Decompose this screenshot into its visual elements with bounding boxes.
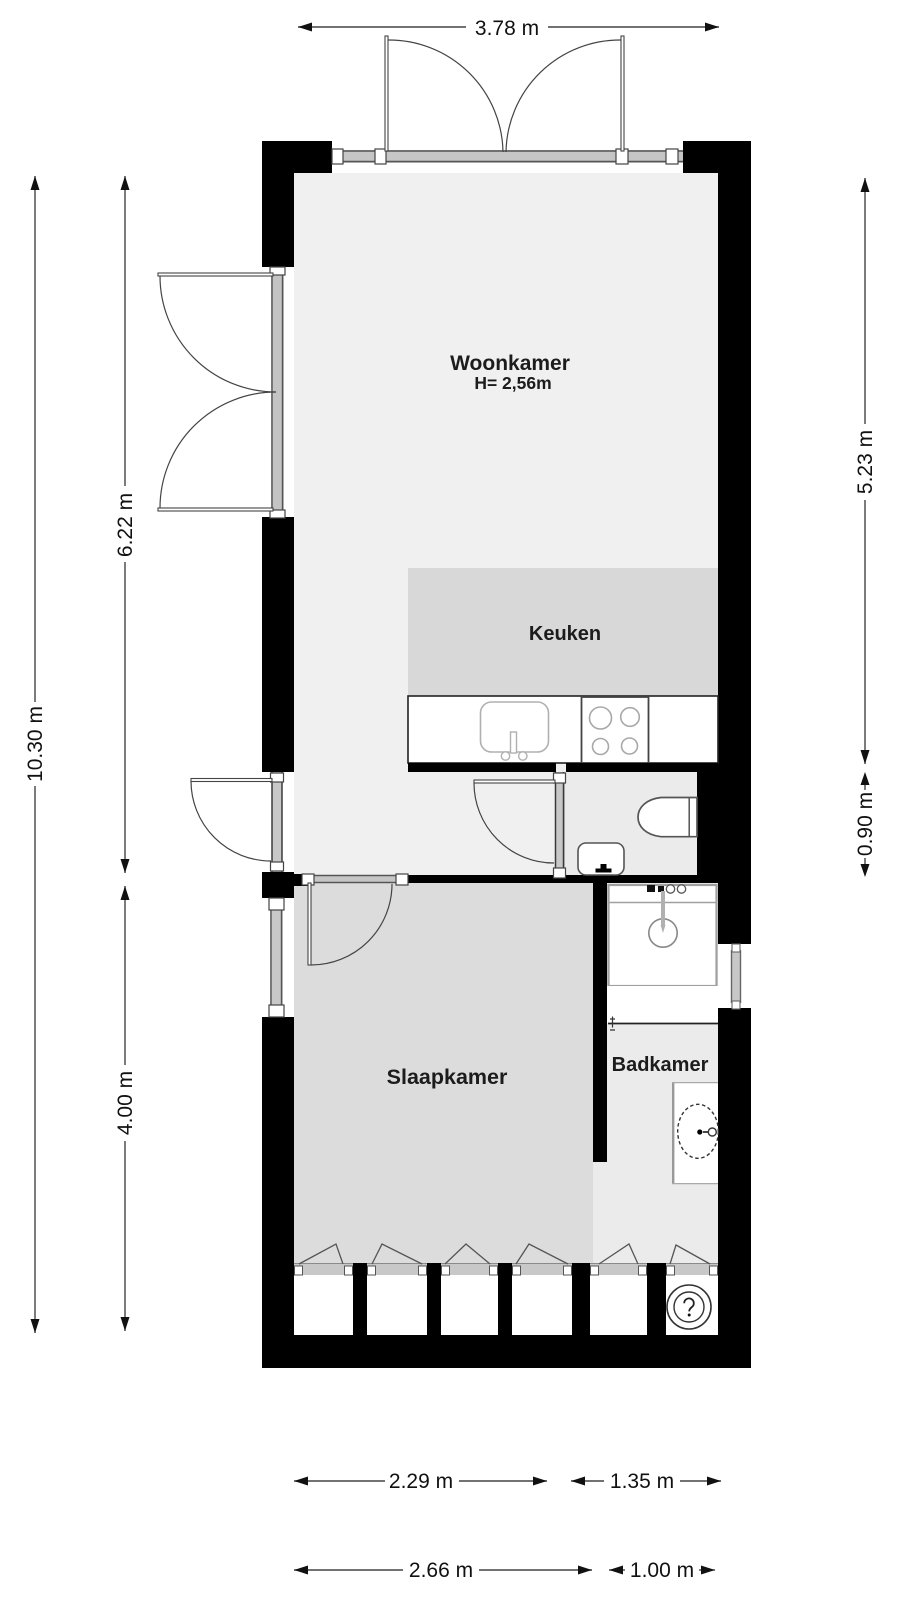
svg-text:3.78 m: 3.78 m <box>475 17 539 40</box>
svg-text:10.30 m: 10.30 m <box>24 706 47 782</box>
svg-text:Woonkamer: Woonkamer <box>450 352 570 375</box>
svg-text:1.00 m: 1.00 m <box>630 1559 694 1582</box>
svg-text:Slaapkamer: Slaapkamer <box>387 1065 508 1089</box>
svg-text:H= 2,56m: H= 2,56m <box>474 373 551 393</box>
svg-text:2.66 m: 2.66 m <box>409 1559 473 1582</box>
svg-text:4.00 m: 4.00 m <box>114 1071 137 1135</box>
svg-text:2.29 m: 2.29 m <box>389 1470 453 1493</box>
svg-text:5.23 m: 5.23 m <box>854 430 877 494</box>
svg-text:Keuken: Keuken <box>529 623 601 645</box>
svg-text:6.22 m: 6.22 m <box>114 493 137 557</box>
svg-text:0.90 m: 0.90 m <box>854 792 877 856</box>
svg-text:1.35 m: 1.35 m <box>610 1470 674 1493</box>
svg-text:Badkamer: Badkamer <box>612 1054 709 1076</box>
